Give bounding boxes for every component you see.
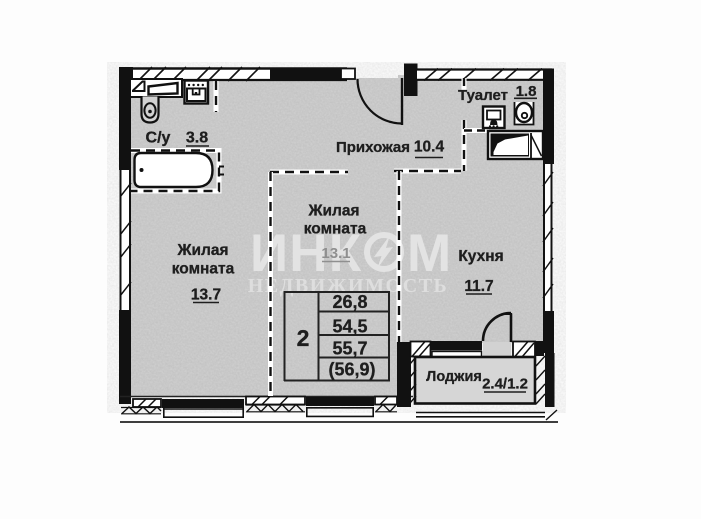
svg-text:11.7: 11.7 [464,278,493,295]
svg-text:(56,9): (56,9) [328,360,375,380]
svg-text:Туалет: Туалет [458,87,508,104]
svg-text:Кухня: Кухня [458,248,503,265]
svg-text:Жилая: Жилая [307,203,359,220]
svg-text:10.4: 10.4 [414,139,445,156]
svg-text:Прихожая: Прихожая [336,139,410,156]
svg-text:13.7: 13.7 [191,287,221,304]
svg-text:26,8: 26,8 [332,292,367,312]
svg-text:1.8: 1.8 [516,83,537,100]
svg-text:13.1: 13.1 [321,245,350,262]
svg-text:55,7: 55,7 [332,339,367,359]
svg-text:комната: комната [304,221,367,238]
svg-text:2.4/1.2: 2.4/1.2 [482,376,528,393]
svg-text:Лоджия: Лоджия [426,369,482,385]
svg-text:2: 2 [297,325,310,351]
svg-text:54,5: 54,5 [332,317,367,337]
svg-text:3.8: 3.8 [186,130,208,147]
svg-text:Жилая: Жилая [176,242,228,259]
svg-text:С/у: С/у [146,130,171,147]
svg-text:комната: комната [172,261,235,278]
